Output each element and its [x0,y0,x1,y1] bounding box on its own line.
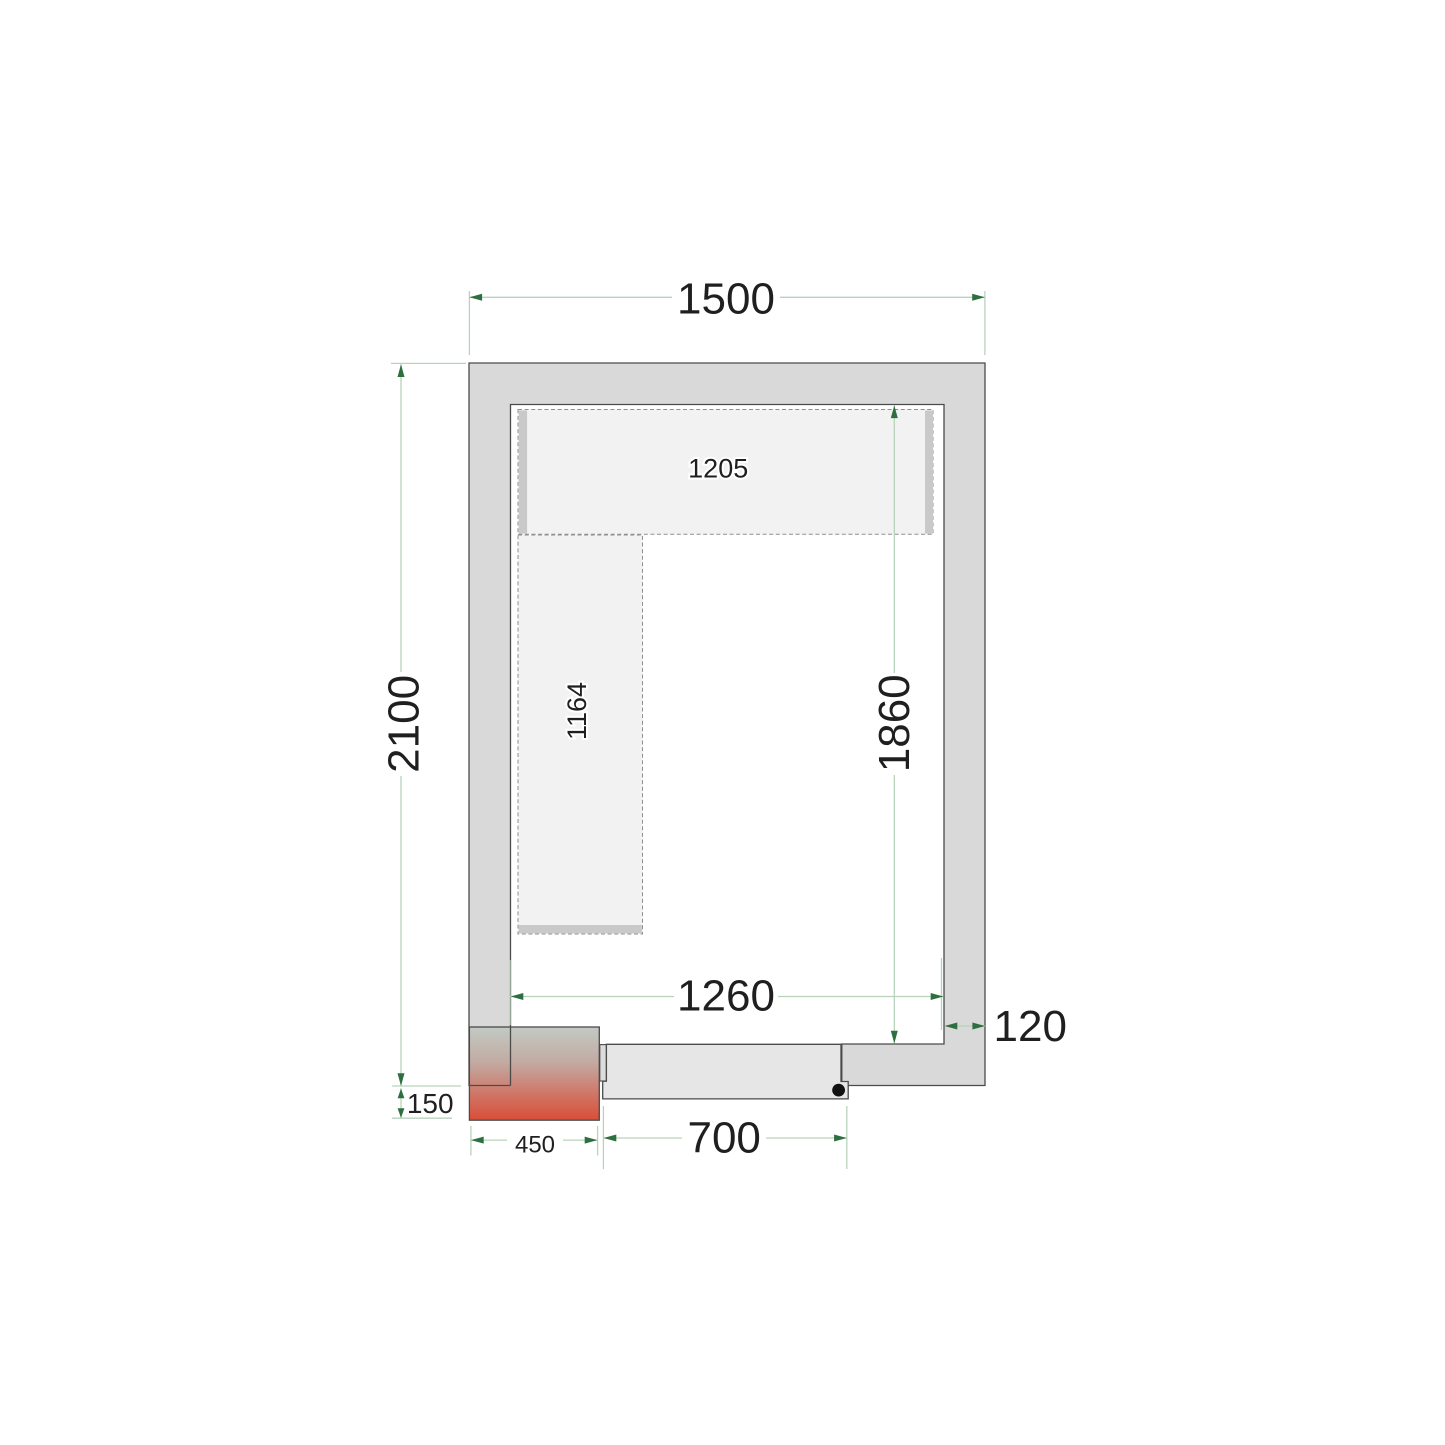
svg-text:450: 450 [515,1131,555,1158]
svg-text:1205: 1205 [688,454,748,484]
svg-text:1260: 1260 [677,972,775,1021]
svg-text:1164: 1164 [562,682,592,740]
svg-text:700: 700 [687,1114,760,1163]
svg-text:120: 120 [994,1002,1067,1051]
svg-text:1860: 1860 [870,674,919,772]
svg-text:150: 150 [407,1088,454,1119]
svg-text:1500: 1500 [677,275,775,324]
svg-text:2100: 2100 [380,675,429,773]
